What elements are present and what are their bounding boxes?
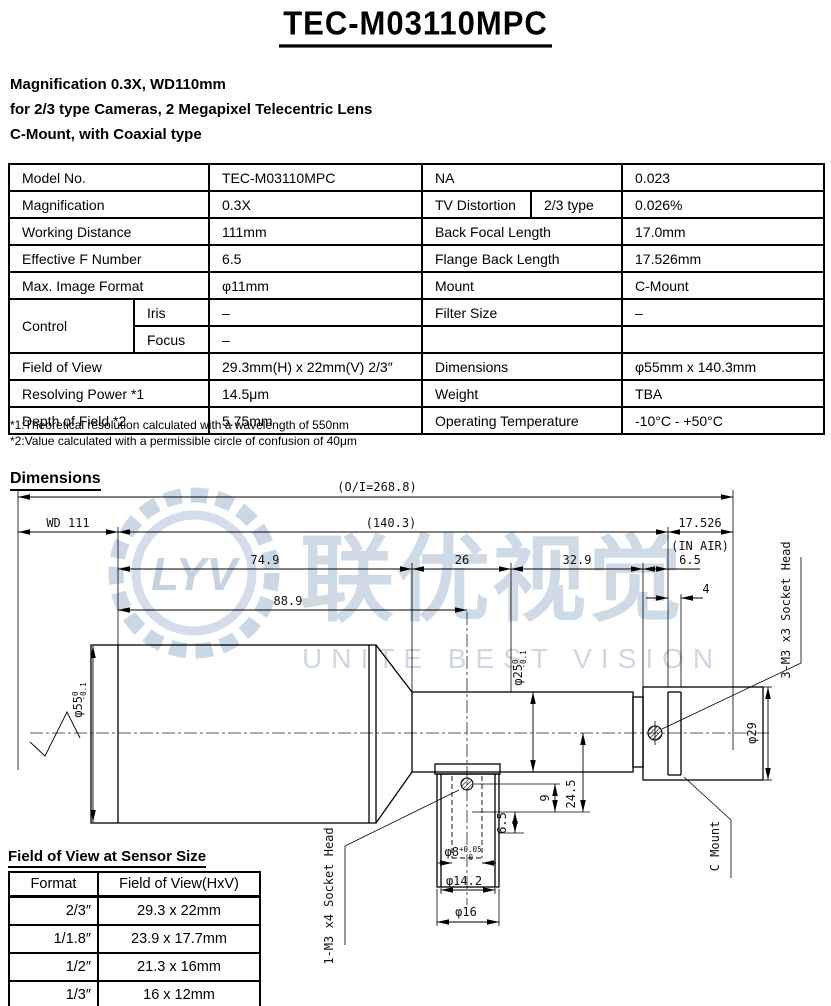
fov-format: 2/3″ [9,897,98,926]
dim-26: 26 [455,553,469,567]
fov-header-view: Field of View(HxV) [98,872,260,897]
dim-6-5-port: 6.5 [495,812,509,834]
table-row: 1/3″ 16 x 12mm [9,981,260,1006]
coax-port-tube [437,774,499,887]
table-row: Effective F Number 6.5 Flange Back Lengt… [9,245,824,272]
page-title: TEC-M03110MPC [279,4,552,47]
footnote-2: *2:Value calculated with a permissible c… [10,433,357,449]
dim-24-5: 24.5 [564,780,578,809]
fov-table: Format Field of View(HxV) 2/3″ 29.3 x 22… [8,871,261,1006]
table-row: Format Field of View(HxV) [9,872,260,897]
fov-title: Field of View at Sensor Size [8,848,206,868]
table-row: Magnification 0.3X TV Distortion 2/3 typ… [9,191,824,218]
spec-value: 17.0mm [622,218,824,245]
spec-table: Model No. TEC-M03110MPC NA 0.023 Magnifi… [8,163,825,435]
spec-label: Max. Image Format [9,272,209,299]
spec-label: Magnification [9,191,209,218]
watermark: LYV 联优视觉 UNITE BEST VISION [116,495,722,674]
dim-body-length: (140.3) [366,516,417,530]
spec-value: φ11mm [209,272,422,299]
table-row: Working Distance 111mm Back Focal Length… [9,218,824,245]
spec-value [622,326,824,353]
table-row: 1/2″ 21.3 x 16mm [9,953,260,981]
socket-screws [461,721,662,790]
fov-format: 1/2″ [9,953,98,981]
description-line-2: for 2/3 type Cameras, 2 Megapixel Telece… [10,97,372,122]
fov-format: 1/1.8″ [9,925,98,953]
dim-phi8: φ8+0.050 [444,845,481,862]
dim-9: 9 [538,794,552,801]
table-row: Control Iris – Filter Size – [9,299,824,326]
spec-value: 0.023 [622,164,824,191]
spec-label: NA [422,164,622,191]
fov-value: 21.3 x 16mm [98,953,260,981]
dim-88-9: 88.9 [274,594,303,608]
spec-value: – [622,299,824,326]
fov-header-format: Format [9,872,98,897]
table-row: 1/1.8″ 23.9 x 17.7mm [9,925,260,953]
table-row: Field of View 29.3mm(H) x 22mm(V) 2/3″ D… [9,353,824,380]
spec-label: Resolving Power *1 [9,380,209,407]
dim-overall: (O/I=268.8) [337,480,416,494]
table-row: Model No. TEC-M03110MPC NA 0.023 [9,164,824,191]
dim-flange-back: 17.526 [678,516,721,530]
spec-value: 0.3X [209,191,422,218]
table-row: Max. Image Format φ11mm Mount C-Mount [9,272,824,299]
spec-value: C-Mount [622,272,824,299]
spec-label [422,326,622,353]
spec-label: Effective F Number [9,245,209,272]
label-3m3-socket-head: 3-M3 x3 Socket Head [779,541,793,678]
dim-phi16: φ16 [455,905,477,919]
spec-label: Flange Back Length [422,245,622,272]
spec-label: Weight [422,380,622,407]
spec-value: 6.5 [209,245,422,272]
fov-format: 1/3″ [9,981,98,1006]
spec-label: Filter Size [422,299,622,326]
product-description: Magnification 0.3X, WD110mm for 2/3 type… [10,72,372,147]
description-line-1: Magnification 0.3X, WD110mm [10,72,372,97]
fov-value: 16 x 12mm [98,981,260,1006]
spec-value: 0.026% [622,191,824,218]
footnotes: *1:Theoretical resolution calculated wit… [10,417,357,449]
table-row: 2/3″ 29.3 x 22mm [9,897,260,926]
dim-phi29: φ29 [745,722,759,744]
watermark-logo: LYV [151,548,240,600]
watermark-chinese-text: 联优视觉 [300,526,684,635]
spec-value: -10°C - +50°C [622,407,824,434]
description-line-3: C-Mount, with Coaxial type [10,122,372,147]
spec-value: 17.526mm [622,245,824,272]
spec-label: Mount [422,272,622,299]
dimensions-heading: Dimensions [10,470,101,491]
dim-wd: WD 111 [46,516,89,530]
spec-label: Operating Temperature [422,407,622,434]
spec-sublabel: 2/3 type [531,191,622,218]
dim-4: 4 [702,582,709,596]
fov-value: 23.9 x 17.7mm [98,925,260,953]
spec-label: Model No. [9,164,209,191]
spec-value: 29.3mm(H) x 22mm(V) 2/3″ [209,353,422,380]
label-c-mount: C Mount [708,821,722,872]
fov-value: 29.3 x 22mm [98,897,260,926]
spec-value: 14.5μm [209,380,422,407]
spec-value: – [209,326,422,353]
spec-sublabel: Iris [134,299,209,326]
spec-label: TV Distortion [422,191,531,218]
spec-label: Field of View [9,353,209,380]
spec-value: 111mm [209,218,422,245]
spec-value: – [209,299,422,326]
dim-phi14-2: φ14.2 [446,874,482,888]
dim-74-9: 74.9 [251,553,280,567]
footnote-1: *1:Theoretical resolution calculated wit… [10,417,357,433]
spec-value: φ55mm x 140.3mm [622,353,824,380]
dim-6-5: 6.5 [679,553,701,567]
datasheet-page: TEC-M03110MPC Magnification 0.3X, WD110m… [0,0,831,1006]
spec-label: Control [9,299,134,353]
table-row: Resolving Power *1 14.5μm Weight TBA [9,380,824,407]
dim-32-9: 32.9 [563,553,592,567]
spec-label: Dimensions [422,353,622,380]
spec-sublabel: Focus [134,326,209,353]
spec-label: Back Focal Length [422,218,622,245]
lens-mid-barrel [412,692,633,772]
dim-phi55: φ550-0.1 [71,682,88,717]
spec-value: TBA [622,380,824,407]
spec-label: Working Distance [9,218,209,245]
label-1m3-socket-head: 1-M3 x4 Socket Head [322,827,336,964]
fov-section: Field of View at Sensor Size Format Fiel… [8,848,261,1006]
lens-step-ring [633,697,643,767]
dim-in-air: (IN AIR) [671,539,729,553]
port-socket-screw [461,778,473,790]
spec-value: TEC-M03110MPC [209,164,422,191]
